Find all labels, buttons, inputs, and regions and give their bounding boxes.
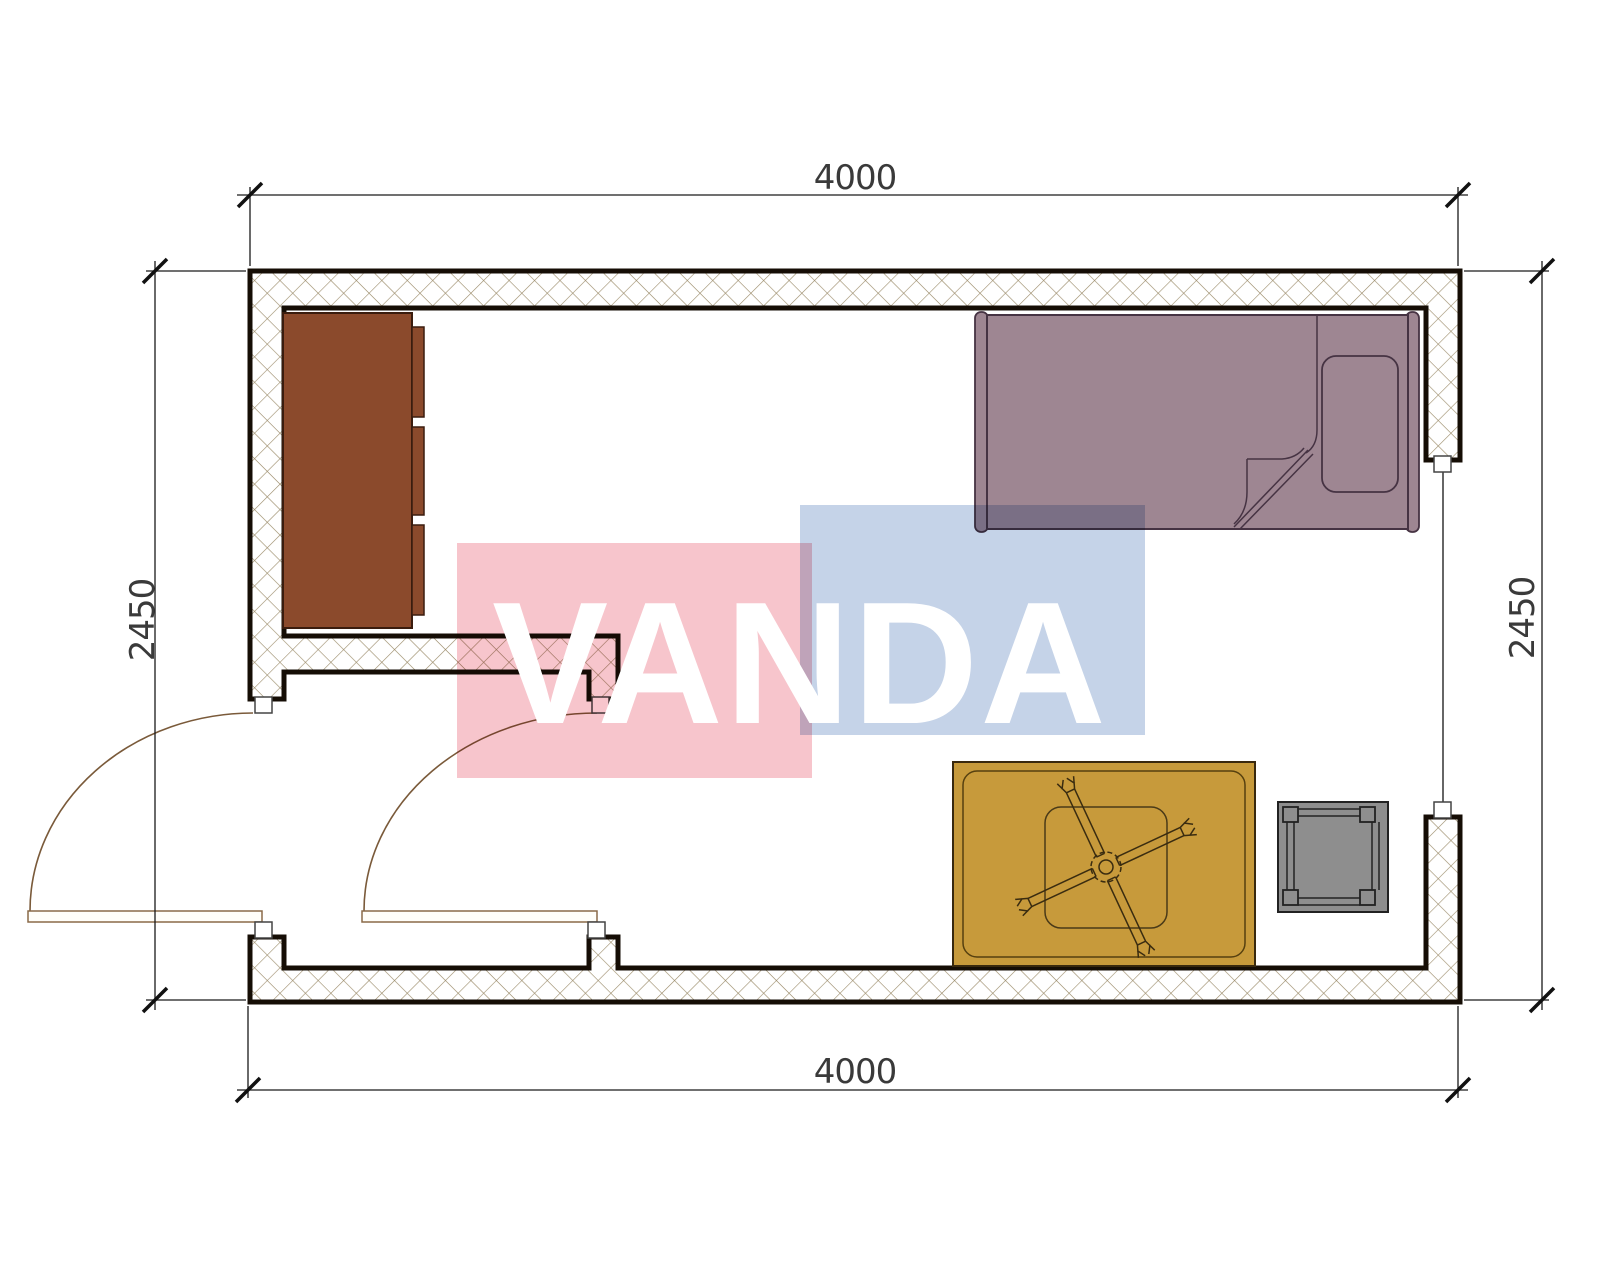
watermark-text: VANDA	[492, 565, 1108, 760]
dim-label-bottom: 4000	[814, 1052, 897, 1092]
dim-label-right: 2450	[1503, 577, 1543, 660]
cabinet-door-panel	[412, 525, 424, 615]
door-jamb-marker	[255, 697, 272, 713]
window-jamb-marker	[1434, 802, 1451, 818]
fan-hub	[1099, 860, 1113, 874]
bed-pillow	[1322, 356, 1398, 492]
door-swing-arc-left	[30, 713, 253, 911]
table-leg	[1360, 890, 1375, 905]
table-leg	[1283, 807, 1298, 822]
dim-label-left: 2450	[123, 579, 163, 662]
door-leaf-inner	[362, 911, 597, 922]
rug	[953, 762, 1255, 966]
cabinet-body	[283, 313, 412, 628]
window-jamb-marker	[1434, 456, 1451, 472]
window-right	[1434, 456, 1451, 818]
bed	[975, 312, 1419, 532]
dim-label-top: 4000	[814, 158, 897, 198]
door-jamb-marker	[255, 922, 272, 938]
side-table	[1278, 802, 1388, 912]
floor-plan-drawing: 4000 4000 2450 2450 VANDA	[0, 0, 1600, 1280]
door-jamb-marker	[588, 922, 605, 938]
floor-plan-page: 4000 4000 2450 2450 VANDA	[0, 0, 1600, 1280]
cabinet-door-panel	[412, 427, 424, 515]
table-leg	[1360, 807, 1375, 822]
cabinet-door-panel	[412, 327, 424, 417]
door-leaf-left	[28, 911, 262, 922]
wardrobe-cabinet	[283, 313, 424, 628]
watermark: VANDA	[457, 505, 1145, 778]
table-leg	[1283, 890, 1298, 905]
